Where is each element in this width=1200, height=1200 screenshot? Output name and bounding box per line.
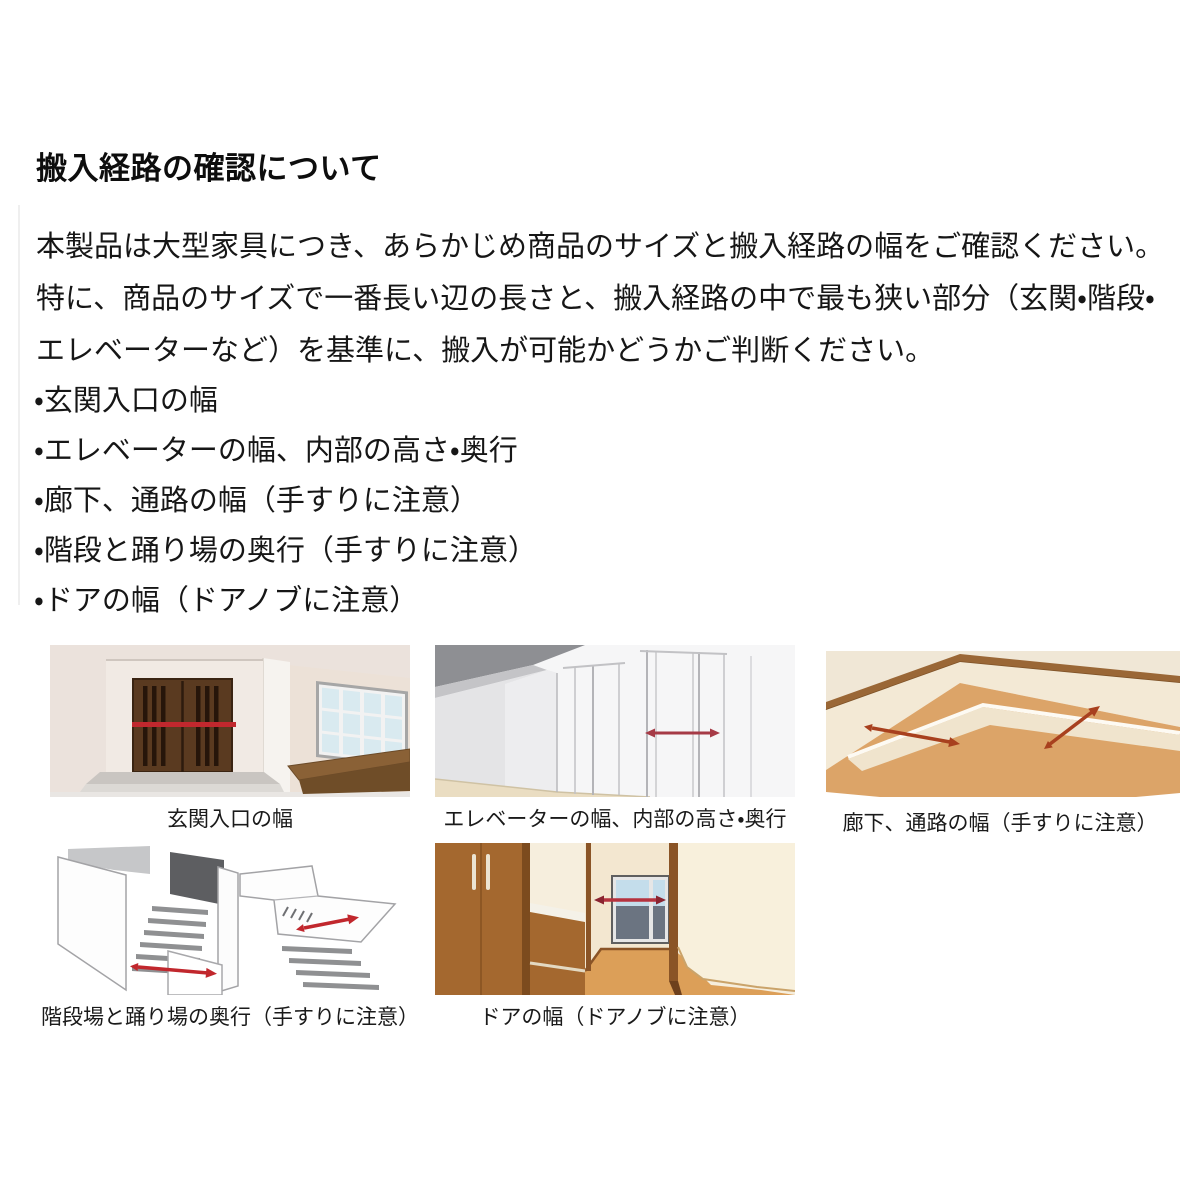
figure-elevator: エレベーターの幅、内部の高さ・奥行 [435, 645, 795, 833]
intro-paragraph: 本製品は大型家具につき、あらかじめ商品のサイズと搬入経路の幅をご確認ください。 … [36, 221, 1186, 377]
figure-caption-entrance: 玄関入口の幅 [20, 807, 440, 833]
delivery-route-notice-page: 搬入経路の確認について 本製品は大型家具につき、あらかじめ商品のサイズと搬入経路… [0, 0, 1200, 1200]
page-title: 搬入経路の確認について [36, 143, 382, 188]
checklist-item-stairs: ・階段と踊り場の奥行（手すりに注意） [34, 526, 537, 576]
checkpoint-list: ・玄関入口の幅 ・エレベーターの幅、内部の高さ・奥行 ・廊下、通路の幅（手すりに… [34, 376, 537, 626]
figure-corridor: 廊下、通路の幅（手すりに注意） [820, 645, 1180, 837]
elevator-illustration [435, 645, 795, 797]
checklist-item-elevator: ・エレベーターの幅、内部の高さ・奥行 [34, 426, 537, 476]
figure-caption-stairs: 階段場と踊り場の奥行（手すりに注意） [20, 1005, 440, 1031]
checklist-item-door: ・ドアの幅（ドアノブに注意） [34, 576, 537, 626]
figure-door: ドアの幅（ドアノブに注意） [435, 843, 795, 1031]
checklist-item-entrance: ・玄関入口の幅 [34, 376, 537, 426]
figure-caption-elevator: エレベーターの幅、内部の高さ・奥行 [405, 807, 825, 833]
intro-line: エレベーターなど）を基準に、搬入が可能かどうかご判断ください。 [36, 325, 1186, 377]
intro-line: 特に、商品のサイズで一番長い辺の長さと、搬入経路の中で最も狭い部分（玄関・階段・ [36, 273, 1186, 325]
figure-caption-corridor: 廊下、通路の幅（手すりに注意） [790, 811, 1200, 837]
intro-line: 本製品は大型家具につき、あらかじめ商品のサイズと搬入経路の幅をご確認ください。 [36, 221, 1186, 273]
figure-stairs: 階段場と踊り場の奥行（手すりに注意） [50, 843, 410, 1031]
door-illustration [435, 843, 795, 995]
checklist-item-corridor: ・廊下、通路の幅（手すりに注意） [34, 476, 537, 526]
corridor-illustration [820, 645, 1180, 797]
faint-scan-line [18, 205, 20, 605]
stairs-illustration [50, 843, 410, 995]
entrance-door-illustration [50, 645, 410, 797]
figure-caption-door: ドアの幅（ドアノブに注意） [405, 1005, 825, 1031]
figure-entrance: 玄関入口の幅 [50, 645, 410, 833]
